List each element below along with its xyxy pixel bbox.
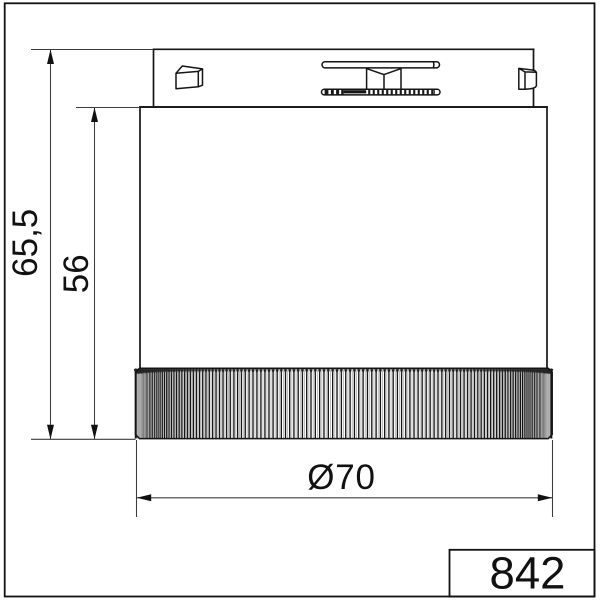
svg-text:842: 842 (490, 548, 566, 599)
svg-text:65,5: 65,5 (6, 209, 45, 277)
svg-text:56: 56 (57, 254, 96, 293)
svg-text:Ø70: Ø70 (307, 458, 376, 497)
